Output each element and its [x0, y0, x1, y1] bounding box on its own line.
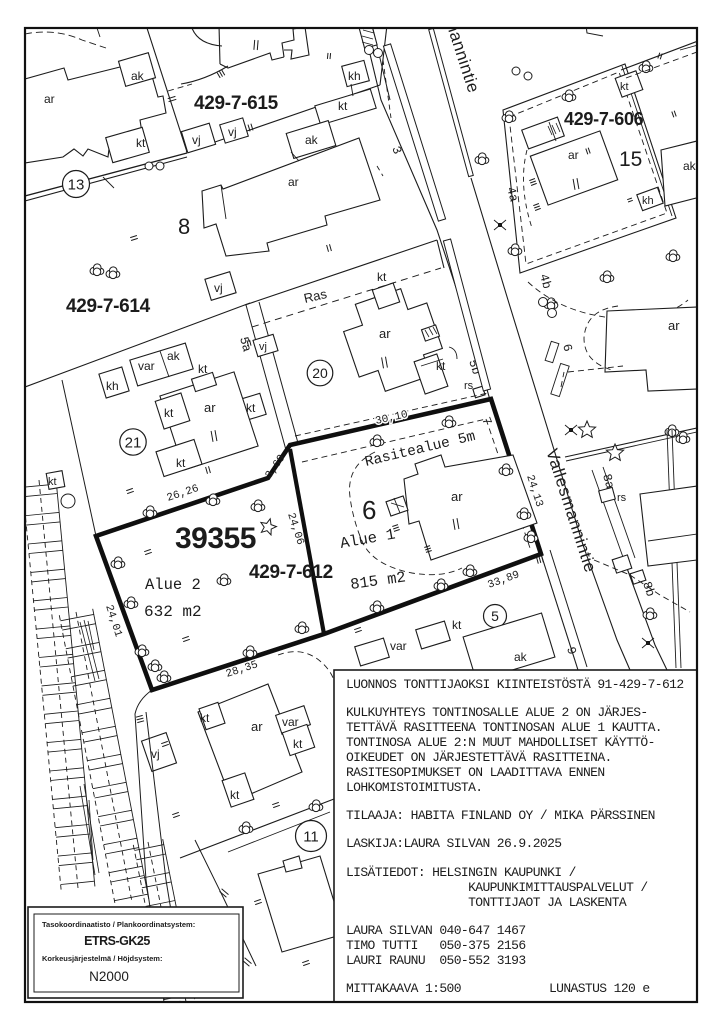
svg-text:20: 20: [312, 365, 328, 381]
svg-text:kt: kt: [436, 359, 446, 373]
svg-text:429-7-606: 429-7-606: [564, 109, 644, 129]
svg-text:LAURI RAUNU 050-552 3193: LAURI RAUNU 050-552 3193: [346, 953, 526, 968]
svg-text:TIMO TUTTI 050-375 2156: TIMO TUTTI 050-375 2156: [346, 938, 526, 953]
svg-text:21: 21: [125, 434, 142, 451]
svg-text:KAUPUNKIMITTAUSPALVELUT /: KAUPUNKIMITTAUSPALVELUT /: [346, 880, 648, 895]
svg-text:OIKEUDET ON JÄRJESTETTÄVÄ RASI: OIKEUDET ON JÄRJESTETTÄVÄ RASITTEINA.: [346, 750, 612, 765]
svg-text:ar: ar: [451, 489, 463, 504]
svg-text:var: var: [138, 359, 155, 373]
svg-text:vj: vj: [214, 281, 223, 295]
svg-text:vj: vj: [228, 125, 237, 139]
svg-text:429-7-612: 429-7-612: [249, 562, 333, 583]
svg-text:ak: ak: [167, 349, 181, 363]
svg-text:632 m2: 632 m2: [144, 603, 202, 621]
svg-text:LUNASTUS 120 e: LUNASTUS 120 e: [549, 981, 650, 996]
svg-text:ETRS-GK25: ETRS-GK25: [84, 934, 150, 948]
svg-text:15: 15: [619, 148, 642, 171]
svg-text:ak: ak: [131, 69, 145, 83]
svg-text:8: 8: [178, 214, 190, 239]
svg-text:Tasokoordinaatisto / Plankoord: Tasokoordinaatisto / Plankoordinatsystem…: [42, 920, 195, 929]
svg-text:ar: ar: [251, 719, 263, 734]
svg-text:RASITESOPIMUKSET ON LAADITTAVA: RASITESOPIMUKSET ON LAADITTAVA ENNEN: [346, 765, 605, 780]
svg-text:5: 5: [491, 608, 499, 624]
svg-text:kt: kt: [198, 362, 208, 376]
svg-text:var: var: [282, 715, 299, 729]
svg-text:KULKUYHTEYS TONTINOSALLE ALUE: KULKUYHTEYS TONTINOSALLE ALUE 2 ON JÄRJE…: [346, 705, 648, 720]
svg-text:ak: ak: [683, 159, 697, 173]
svg-text:var: var: [390, 639, 407, 653]
svg-text:kt: kt: [293, 737, 303, 751]
svg-text:LOHKOMISTOIMITUSTA.: LOHKOMISTOIMITUSTA.: [346, 780, 482, 795]
svg-text:vj: vj: [192, 133, 201, 147]
svg-text:ak: ak: [514, 650, 528, 664]
svg-text:429-7-615: 429-7-615: [194, 93, 279, 114]
svg-text:ak: ak: [305, 133, 319, 147]
svg-text:vj: vj: [151, 747, 160, 761]
svg-text:ar: ar: [204, 400, 216, 415]
svg-text:ar: ar: [44, 92, 55, 106]
svg-text:kh: kh: [106, 379, 119, 393]
svg-text:rs: rs: [464, 380, 474, 392]
svg-text:rs: rs: [617, 492, 627, 504]
svg-text:Korkeusjärjestelmä / Höjdsyste: Korkeusjärjestelmä / Höjdsystem:: [42, 954, 162, 963]
svg-text:ar: ar: [379, 326, 391, 341]
svg-text:11: 11: [303, 828, 319, 845]
svg-text:TETTÄVÄ RASITTEENA TONTINOSAN: TETTÄVÄ RASITTEENA TONTINOSAN ALUE 1 KAU…: [346, 720, 662, 735]
svg-text:N2000: N2000: [89, 969, 129, 984]
svg-text:kh: kh: [642, 195, 654, 207]
svg-text:LISÄTIEDOT: HELSINGIN KAUPUNKI: LISÄTIEDOT: HELSINGIN KAUPUNKI /: [346, 865, 577, 880]
svg-text:kt: kt: [377, 270, 387, 284]
svg-text:39355: 39355: [175, 522, 256, 555]
svg-text:ar: ar: [288, 175, 299, 189]
svg-text:kt: kt: [136, 136, 146, 150]
svg-text:ar: ar: [568, 148, 579, 162]
svg-text:kt: kt: [452, 618, 462, 632]
svg-text:TILAAJA: HABITA FINLAND OY / M: TILAAJA: HABITA FINLAND OY / MIKA PÄRSSI…: [346, 808, 655, 823]
svg-text:TONTINOSA ALUE 2:N MUUT MAHDOL: TONTINOSA ALUE 2:N MUUT MAHDOLLISET KÄYT…: [346, 735, 655, 750]
svg-text:kh: kh: [348, 69, 361, 83]
svg-text:kt: kt: [200, 711, 210, 725]
svg-text:MITTAKAAVA 1:500: MITTAKAAVA 1:500: [346, 981, 461, 996]
svg-text:Alue 2: Alue 2: [145, 576, 201, 594]
svg-text:LAURA SILVAN 040-647 1467: LAURA SILVAN 040-647 1467: [346, 923, 526, 938]
svg-text:vj: vj: [259, 341, 267, 353]
svg-text:TONTTIJAOT JA LASKENTA: TONTTIJAOT JA LASKENTA: [346, 895, 627, 910]
svg-text:kt: kt: [164, 406, 174, 420]
svg-text:kt: kt: [620, 81, 629, 93]
svg-text:13: 13: [68, 176, 85, 193]
svg-text:ar: ar: [668, 318, 680, 333]
svg-text:6: 6: [362, 495, 376, 525]
svg-text:LUONNOS TONTTIJAOKSI KIINTEIST: LUONNOS TONTTIJAOKSI KIINTEISTÖSTÄ 91-42…: [346, 677, 684, 692]
svg-text:LASKIJA:LAURA SILVAN 26.9.2025: LASKIJA:LAURA SILVAN 26.9.2025: [346, 836, 561, 851]
svg-text:kt: kt: [48, 476, 57, 488]
svg-text:kt: kt: [230, 788, 240, 802]
svg-text:kt: kt: [176, 456, 186, 470]
svg-text:kt: kt: [338, 99, 348, 113]
svg-text:429-7-614: 429-7-614: [66, 296, 151, 317]
